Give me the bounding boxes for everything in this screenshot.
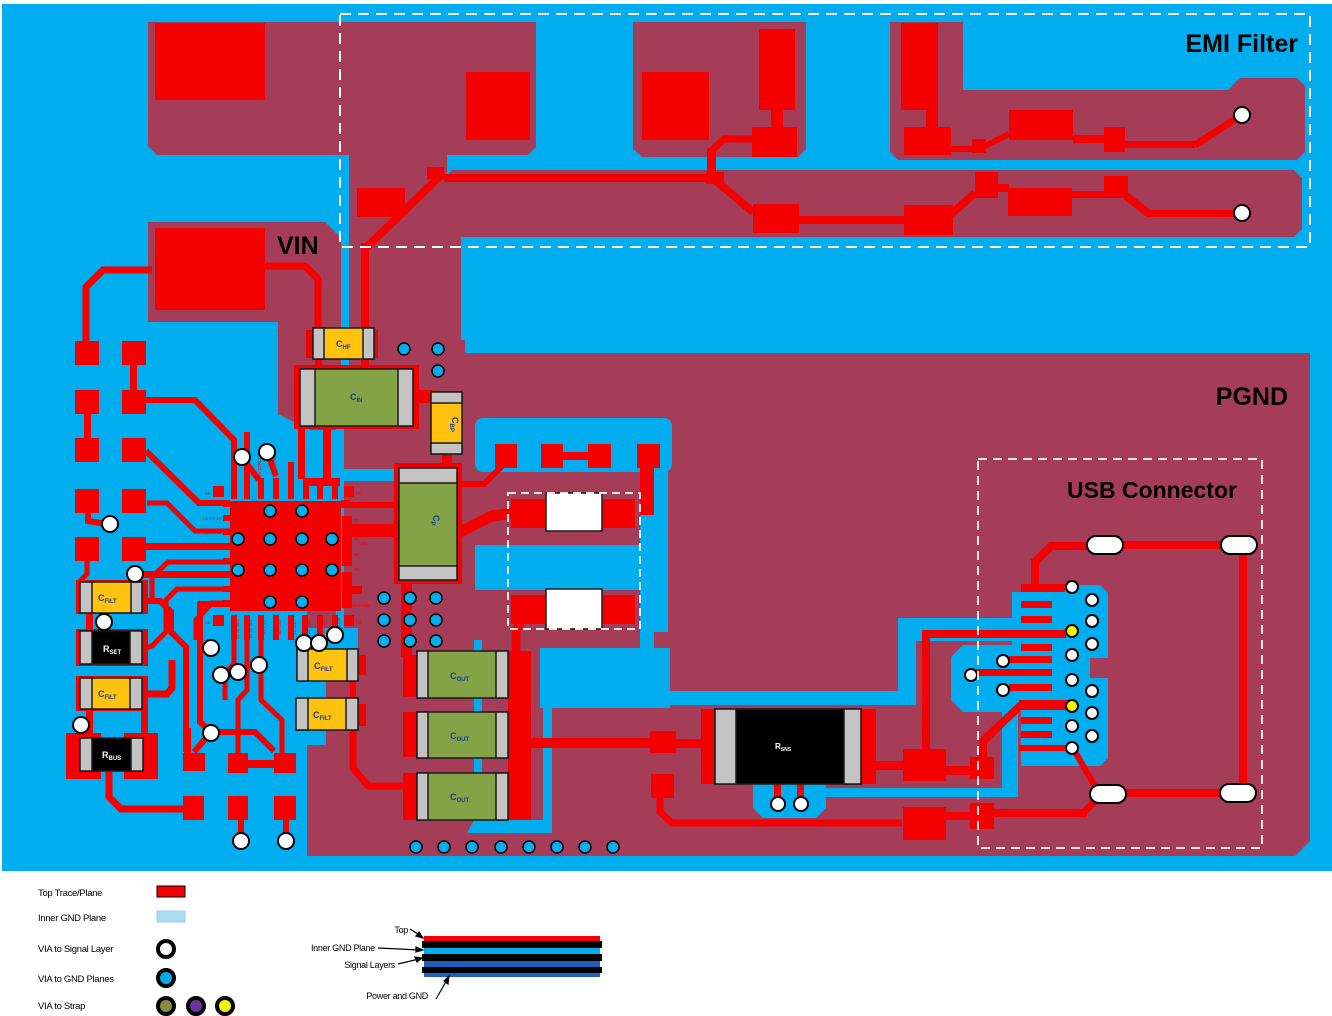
svg-text:PGND: PGND	[1216, 383, 1288, 411]
svg-text:POL 22: POL 22	[306, 620, 311, 635]
svg-text:Power and GND: Power and GND	[366, 991, 428, 1001]
svg-text:A4: A4	[205, 491, 211, 496]
svg-text:SW: SW	[360, 541, 367, 546]
svg-text:29: 29	[354, 552, 359, 557]
svg-text:EMI Filter: EMI Filter	[1185, 30, 1298, 58]
svg-text:LS GS 10: LS GS 10	[203, 516, 222, 521]
svg-text:32 INT: 32 INT	[352, 503, 365, 508]
svg-text:31: 31	[354, 518, 359, 523]
svg-text:Inner GND Plane: Inner GND Plane	[38, 913, 106, 924]
svg-text:CS/DOLE 13: CS/DOLE 13	[197, 559, 222, 564]
svg-text:IMON 11: IMON 11	[205, 530, 222, 535]
svg-text:Signal Layers: Signal Layers	[344, 960, 395, 970]
svg-text:IN CTRL2: IN CTRL2	[257, 457, 262, 476]
svg-text:CBP 14: CBP 14	[207, 573, 222, 578]
svg-text:USB Connector: USB Connector	[1067, 477, 1237, 503]
svg-text:VIA to Strap: VIA to Strap	[38, 1001, 85, 1012]
svg-text:A1: A1	[356, 491, 362, 496]
svg-text:Top: Top	[394, 925, 408, 935]
svg-text:VDD 21: VDD 21	[292, 620, 297, 635]
svg-text:DP_IN 18: DP_IN 18	[248, 620, 253, 639]
svg-text:BUS 15: BUS 15	[207, 587, 222, 592]
svg-text:A IN: A IN	[287, 468, 292, 476]
svg-text:A2: A2	[356, 620, 362, 625]
svg-text:ILIM 12: ILIM 12	[207, 544, 222, 549]
svg-text:25 PGND: 25 PGND	[352, 603, 370, 608]
svg-text:DM_IN 17: DM_IN 17	[235, 620, 240, 640]
svg-text:VIA to GND Planes: VIA to GND Planes	[38, 974, 114, 985]
svg-text:AGND 16: AGND 16	[203, 601, 222, 606]
svg-text:VIN: VIN	[277, 232, 319, 260]
svg-text:30: 30	[354, 536, 359, 541]
svg-text:CC1 20: CC1 20	[277, 620, 282, 635]
svg-text:A3: A3	[205, 620, 211, 625]
svg-text:RT 9: RT 9	[212, 502, 222, 507]
svg-text:28: 28	[354, 567, 359, 572]
svg-text:Top Trace/Plane: Top Trace/Plane	[38, 888, 102, 899]
svg-text:CC2 19: CC2 19	[262, 620, 267, 635]
svg-text:Inner GND Plane: Inner GND Plane	[311, 943, 375, 953]
svg-text:27: 27	[354, 586, 359, 591]
svg-text:VIA to Signal Layer: VIA to Signal Layer	[38, 944, 113, 955]
